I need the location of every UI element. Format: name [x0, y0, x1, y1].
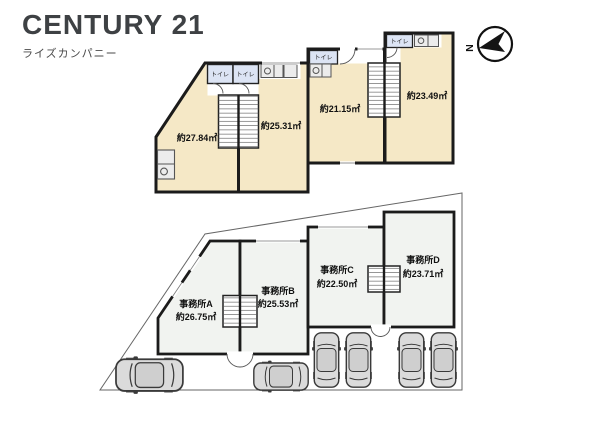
parked-car: [344, 333, 373, 387]
toilet-label: トイレ: [314, 56, 332, 62]
floor-plan-flyer: CENTURY 21 ライズカンパニー: [0, 0, 600, 424]
staircase: [368, 63, 400, 117]
sink-unit: [310, 64, 331, 77]
office-name-label: 事務所B: [261, 285, 295, 296]
parked-car: [312, 333, 341, 387]
toilet-label: トイレ: [211, 73, 229, 79]
staircase: [219, 95, 259, 148]
office-area-label: 約26.75㎡: [176, 311, 217, 322]
toilet-label: トイレ: [390, 40, 408, 46]
office-name-label: 事務所D: [406, 254, 440, 265]
sink-unit: [261, 65, 297, 78]
office-name-label: 事務所A: [179, 298, 213, 309]
parked-car: [429, 333, 458, 387]
parked-car: [397, 333, 426, 387]
upper-floor-plan: トイレ トイレ トイレ トイレ: [156, 33, 453, 192]
office-area-label: 約25.53㎡: [258, 298, 299, 309]
parked-car: [116, 356, 183, 393]
office-name-label: 事務所C: [320, 264, 354, 275]
compass: N: [463, 27, 512, 61]
parked-car: [254, 361, 308, 393]
office-area-label: 約22.50㎡: [317, 278, 358, 289]
lower-floor-plan: 事務所A 約26.75㎡ 事務所B 約25.53㎡ 事務所C 約22.50㎡ 事…: [100, 193, 462, 394]
toilet-label: トイレ: [236, 73, 254, 79]
upper-room-area-label: 約21.15㎡: [320, 103, 361, 114]
compass-north-label: N: [463, 44, 475, 52]
stair-hall: [208, 84, 259, 96]
upper-room-area-label: 約25.31㎡: [261, 120, 302, 131]
office-area-label: 約23.71㎡: [403, 268, 444, 279]
floor-plan-canvas: トイレ トイレ トイレ トイレ: [0, 0, 600, 424]
sink-unit: [415, 35, 439, 47]
kitchen-unit: [158, 150, 175, 179]
staircase: [223, 296, 257, 328]
staircase: [368, 266, 400, 292]
upper-room-area-label: 約23.49㎡: [407, 90, 448, 101]
upper-room-area-label: 約27.84㎡: [177, 132, 218, 143]
